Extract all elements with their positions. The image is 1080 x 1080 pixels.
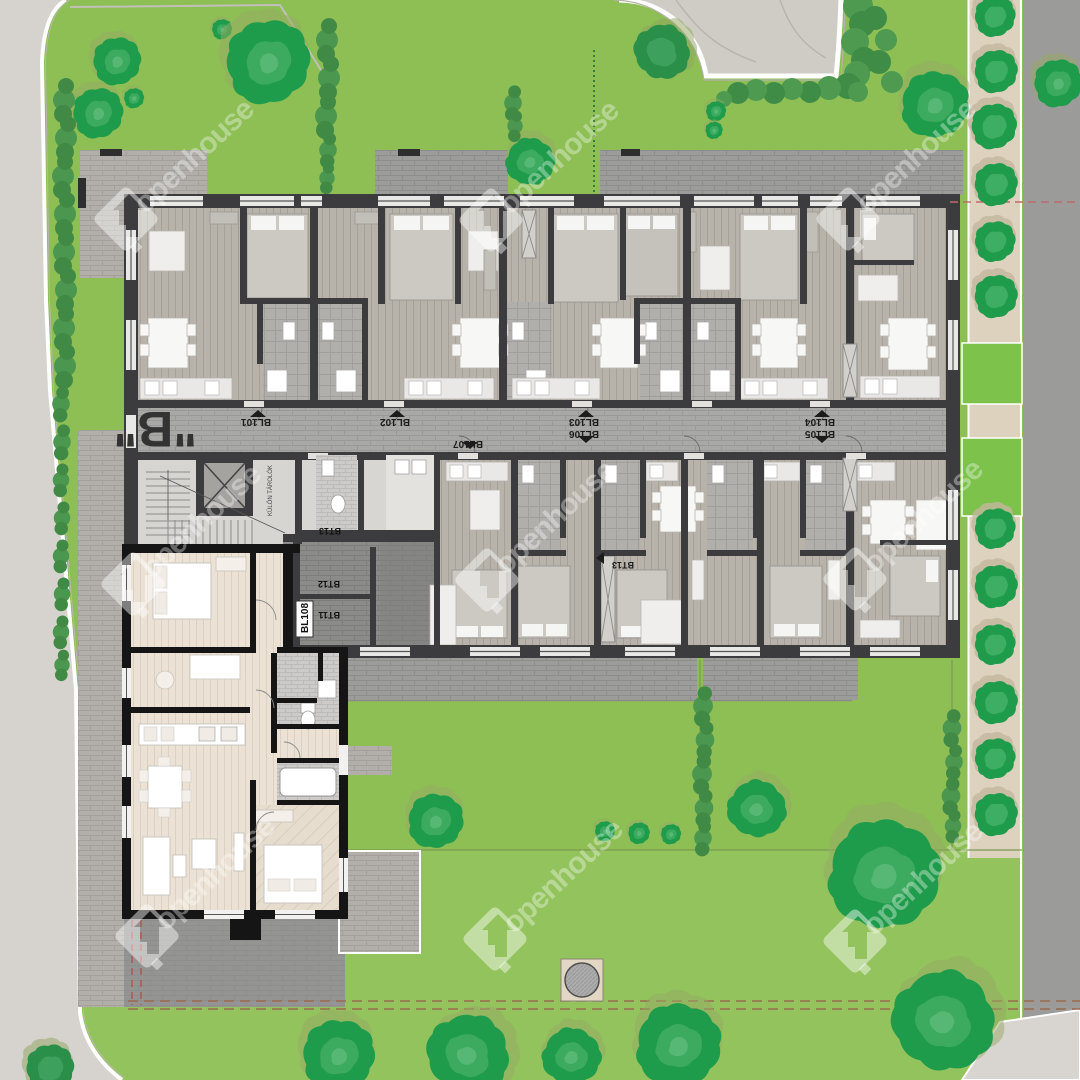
svg-text:BL101: BL101	[241, 416, 271, 427]
svg-text:"B": "B"	[113, 401, 197, 457]
svg-text:KÜLÖN TÁROLÓK: KÜLÖN TÁROLÓK	[267, 465, 274, 516]
svg-text:BL104: BL104	[805, 416, 835, 427]
svg-text:BT11: BT11	[318, 610, 340, 620]
svg-text:BT13: BT13	[612, 560, 634, 570]
svg-text:BL102: BL102	[380, 416, 410, 427]
svg-text:BT13: BT13	[319, 526, 341, 536]
svg-text:BL108: BL108	[300, 603, 311, 633]
svg-text:BL103: BL103	[569, 416, 599, 427]
svg-text:BT12: BT12	[318, 579, 340, 589]
svg-text:BL107: BL107	[453, 438, 483, 449]
